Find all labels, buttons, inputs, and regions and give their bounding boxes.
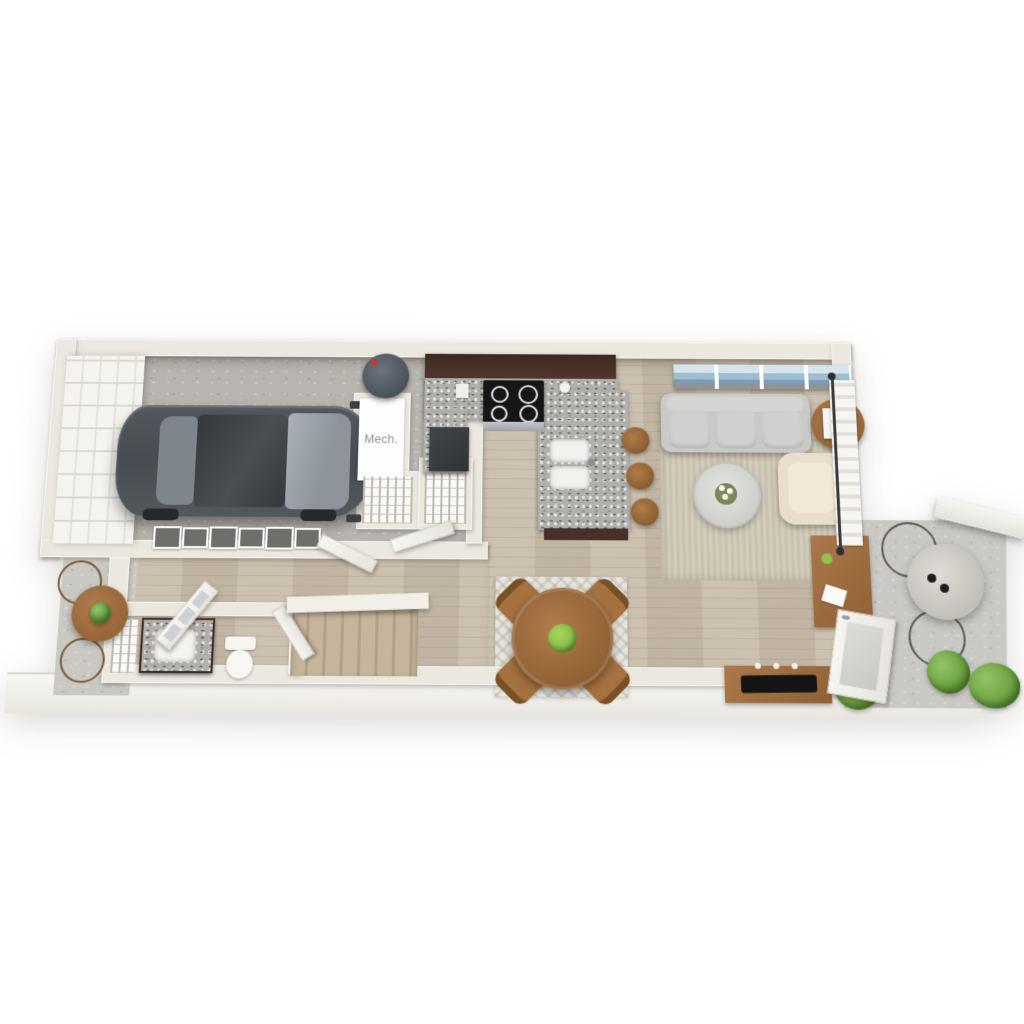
curtain-rod-finial [836,547,844,555]
patio-door-glass [839,622,883,691]
burner [518,385,538,404]
tv [741,675,818,693]
car-wheel [300,509,336,521]
burner [491,406,508,422]
bar-stool [622,427,650,454]
espresso-cup [927,574,937,583]
sink-basin [550,439,590,462]
desk-paper [821,584,847,607]
burner [519,405,538,423]
dining-table [511,588,614,690]
gallery-frame [209,526,234,545]
mech-room: Mech. [357,398,404,480]
flowers [719,485,725,491]
paper-towel-roll [559,382,570,392]
car-sunroof [193,415,288,508]
curtain-rod-finial [828,373,836,381]
bistro-plant [89,602,112,623]
gallery-frame [238,528,261,545]
burner [491,386,509,403]
art-panel-dividers [673,364,852,389]
toilet-tank [225,636,256,649]
car [113,405,374,518]
gallery-frame [153,526,178,545]
panoramic-wall-art [673,364,852,389]
staircase [290,608,418,676]
floor-plan: Mech. [4,326,1005,723]
console-knobs [755,663,761,669]
coat-closet-shelves [362,477,413,524]
espresso-cup [940,584,950,593]
coffee-maker [456,384,469,398]
gallery-frame [265,527,290,546]
gallery-frame [294,528,317,545]
sink-basin [550,466,590,489]
water-heater-valve [370,359,377,366]
mech-room-label: Mech. [364,432,398,446]
armchair-cushion [787,462,835,513]
desk-apple [821,553,833,564]
tv-console [724,666,832,704]
sofa-cushion [761,411,804,449]
range-oven-front [483,422,544,432]
door-handle [842,615,851,620]
sofa-cushion [669,410,711,448]
kitchen-upper-cabinets [425,354,616,381]
bar-stool [631,498,659,526]
car-wheel [142,508,179,520]
bar-stool [626,463,654,490]
peninsula-base-cabinet [544,528,628,540]
sofa-cushion [715,411,758,449]
toilet [222,636,257,679]
sofa [660,393,811,453]
kitchen-sink [550,439,594,491]
floor-plan-render: Mech. [0,0,1024,1024]
faucet [587,458,595,466]
car-windshield [285,413,352,509]
car-rear-window [155,416,198,505]
gallery-frame [182,527,205,544]
toilet-bowl [225,650,253,679]
car-mirror-bottom [346,514,361,522]
fruit-bowl [548,624,577,653]
range [483,380,544,424]
refrigerator [429,427,469,471]
patio-door [827,609,896,704]
